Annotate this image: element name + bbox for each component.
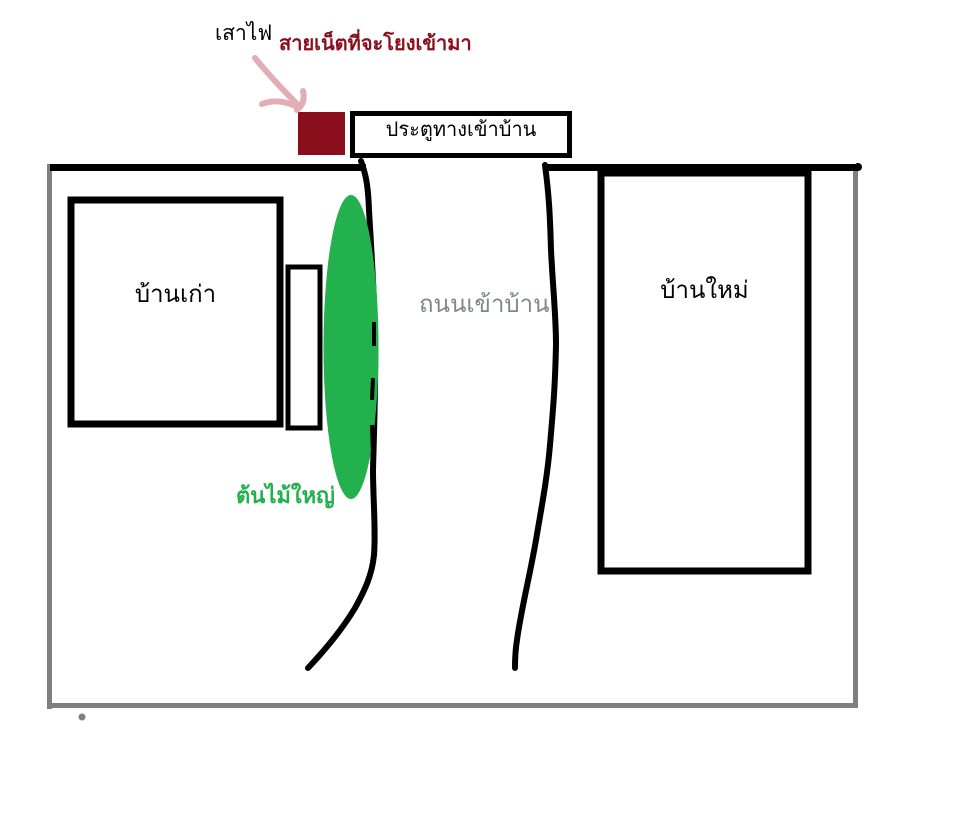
arrow-barb-left bbox=[262, 101, 299, 108]
road-label: ถนนเข้าบ้าน bbox=[419, 291, 550, 319]
tree-label: ต้นไม้ใหญ่ bbox=[236, 483, 335, 508]
new-house-label: บ้านใหม่ bbox=[598, 277, 811, 305]
old-house bbox=[71, 200, 280, 424]
new-house bbox=[601, 173, 808, 571]
paint-diagram: เสาไฟ สายเน็ตที่จะโยงเข้ามา ประตูทางเข้า… bbox=[0, 0, 958, 832]
road-line-right bbox=[515, 165, 556, 668]
entrance-gate-label: ประตูทางเข้าบ้าน bbox=[350, 119, 572, 142]
cable-label: สายเน็ตที่จะโยงเข้ามา bbox=[279, 33, 472, 56]
big-tree bbox=[324, 195, 379, 499]
arrow-barb-right bbox=[297, 91, 304, 110]
internet-cable-arrow bbox=[255, 58, 304, 110]
stray-dot bbox=[79, 714, 86, 721]
road-line-dash-4 bbox=[373, 468, 374, 500]
old-house-annex bbox=[288, 267, 320, 428]
road-line-dash-3 bbox=[372, 425, 373, 455]
road-line-dash-2 bbox=[372, 378, 373, 400]
boundary-top-end-dot bbox=[854, 163, 862, 171]
old-house-label: บ้านเก่า bbox=[68, 281, 283, 309]
power-pole bbox=[298, 112, 345, 155]
pole-label: เสาไฟ bbox=[215, 22, 272, 46]
